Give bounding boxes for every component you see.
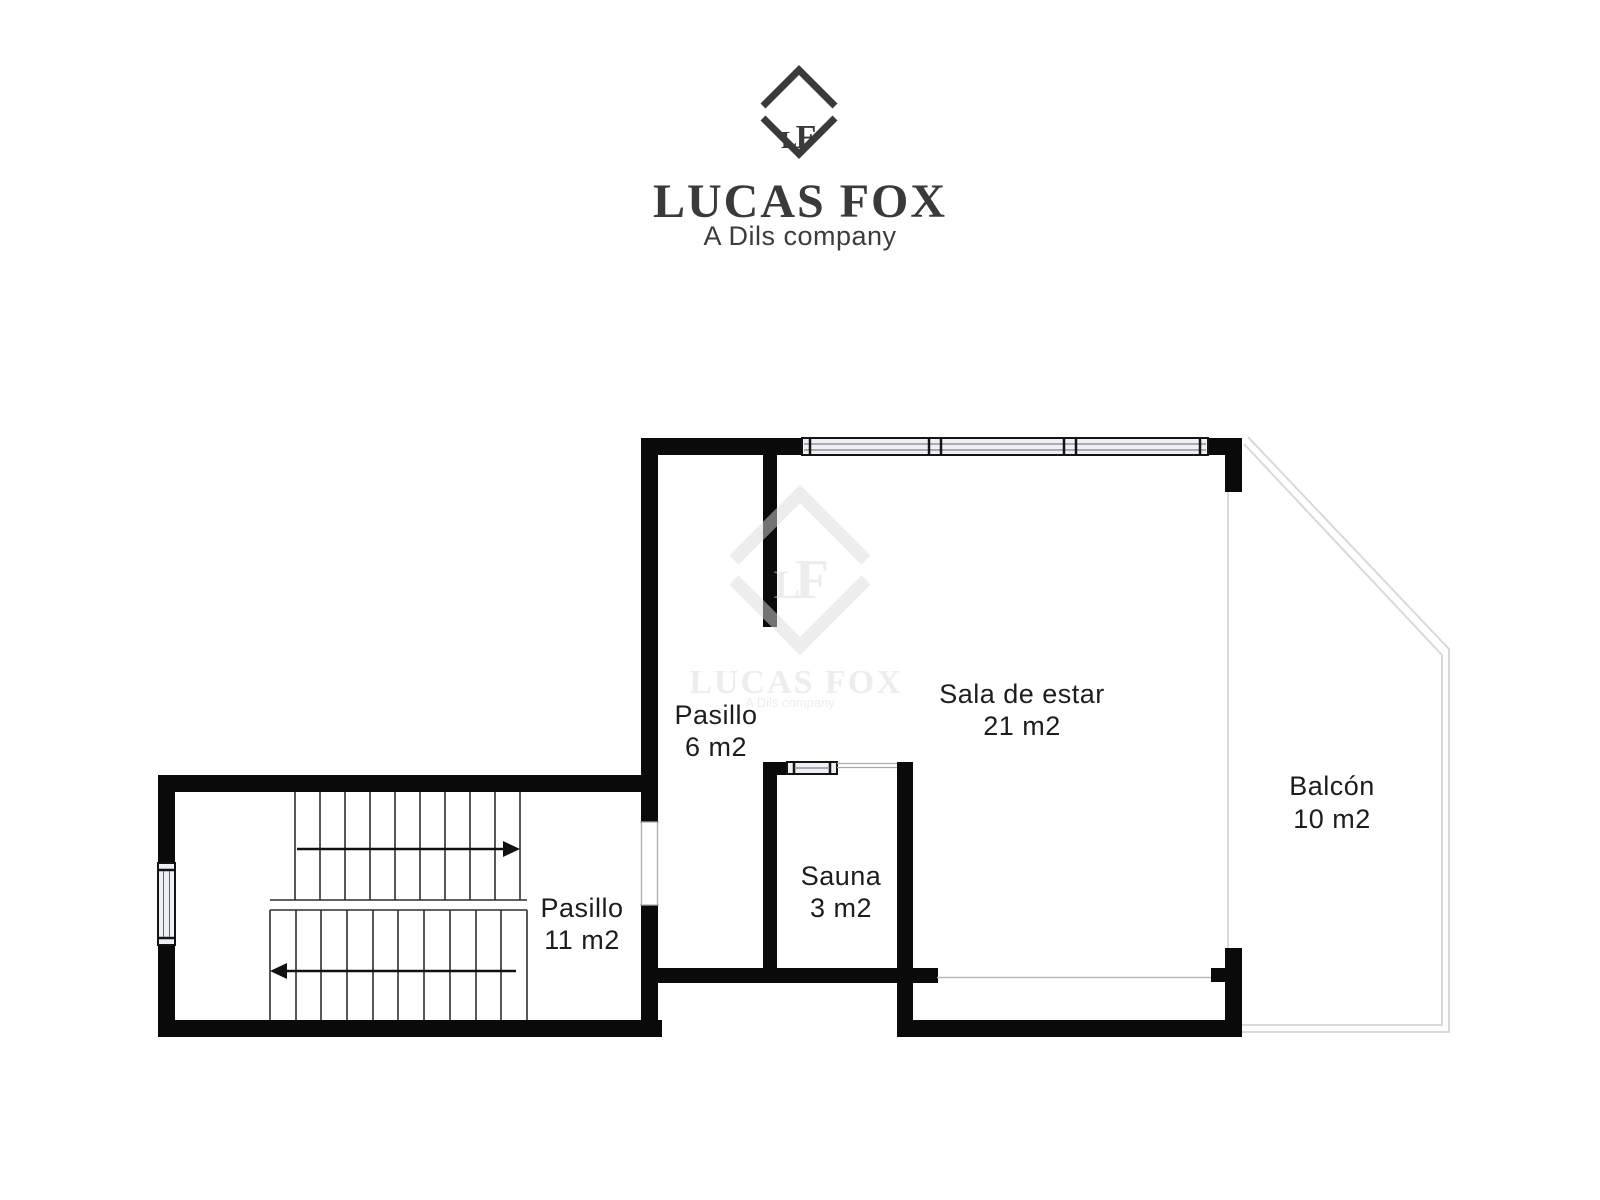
stairs-lower-flight xyxy=(270,910,527,1020)
wall-segment xyxy=(897,762,913,1037)
wall-segment xyxy=(1211,968,1225,982)
room-label-balcon: Balcón 10 m2 xyxy=(1289,771,1375,834)
lucasfox-logo: L F LUCAS FOX A Dils company xyxy=(653,70,947,251)
room-name: Pasillo xyxy=(674,700,757,730)
window-sauna xyxy=(787,762,837,774)
window-top-band xyxy=(802,438,1208,455)
room-area: 6 m2 xyxy=(685,732,747,762)
room-name: Sala de estar xyxy=(939,679,1105,709)
room-name: Balcón xyxy=(1289,771,1375,801)
brand-tagline: A Dils company xyxy=(703,221,896,251)
wall-segment xyxy=(158,1020,662,1037)
room-label-sauna: Sauna 3 m2 xyxy=(801,861,882,923)
wall-segment xyxy=(763,762,777,983)
room-label-pasillo-11: Pasillo 11 m2 xyxy=(540,893,623,955)
wall-segment xyxy=(641,438,658,822)
room-area: 21 m2 xyxy=(983,711,1061,741)
stairs-up-arrow xyxy=(297,841,520,857)
room-area: 10 m2 xyxy=(1293,804,1371,834)
wall-segment xyxy=(1225,438,1242,492)
room-name: Pasillo xyxy=(540,893,623,923)
floorplan-canvas: L F LUCAS FOX A Dils company xyxy=(0,0,1600,1200)
stairs-upper-flight xyxy=(295,792,520,900)
room-name: Sauna xyxy=(801,861,882,891)
watermark-monogram-f: F xyxy=(795,549,829,611)
brand-monogram-l: L xyxy=(781,128,797,154)
stairs-down-arrow xyxy=(270,963,516,979)
room-label-pasillo-6: Pasillo 6 m2 xyxy=(674,700,757,762)
stairs xyxy=(270,792,527,1020)
door-opening-staircase xyxy=(640,822,659,905)
room-labels: Pasillo 6 m2 Sala de estar 21 m2 Balcón … xyxy=(540,679,1374,955)
brand-monogram-f: F xyxy=(796,119,817,156)
room-area: 3 m2 xyxy=(810,893,872,923)
watermark-tagline: A Dils company xyxy=(745,695,835,710)
wall-segment xyxy=(641,968,938,983)
floorplan-page: L F LUCAS FOX A Dils company xyxy=(0,0,1600,1200)
wall-segment xyxy=(158,775,658,792)
watermark: L F LUCAS FOX A Dils company xyxy=(689,494,903,710)
wall-segment xyxy=(763,762,787,775)
balcony-outline xyxy=(1228,437,1449,1032)
opening-sauna-top xyxy=(837,764,897,768)
wall-segment xyxy=(158,775,175,863)
room-label-sala-de-estar: Sala de estar 21 m2 xyxy=(939,679,1105,741)
wall-segment xyxy=(641,438,802,455)
room-area: 11 m2 xyxy=(544,925,620,955)
window-staircase xyxy=(158,863,175,945)
stairs-landing xyxy=(270,900,527,910)
wall-segment xyxy=(897,1020,1242,1037)
wall-segment xyxy=(1225,948,1242,1037)
